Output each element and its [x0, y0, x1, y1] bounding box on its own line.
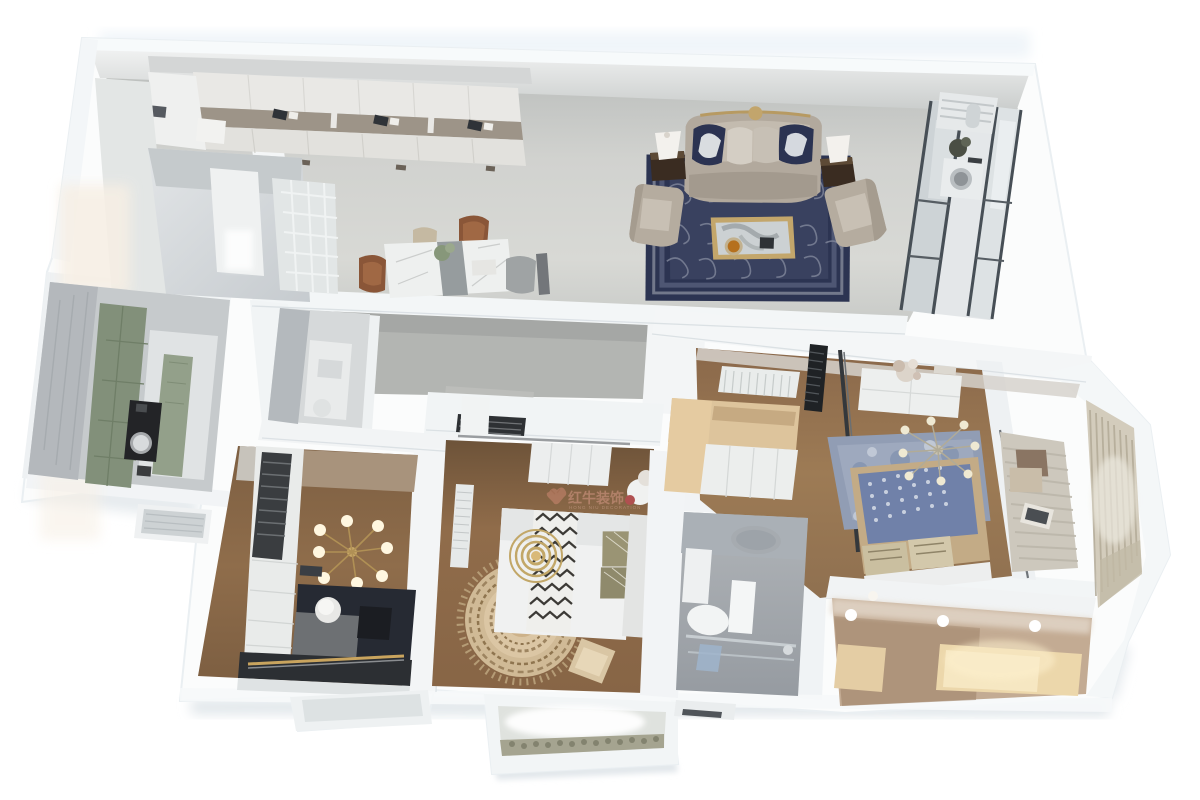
svg-text:HONG NIU DECORATION: HONG NIU DECORATION — [569, 505, 641, 510]
svg-text:红牛装饰: 红牛装饰 — [568, 490, 624, 506]
